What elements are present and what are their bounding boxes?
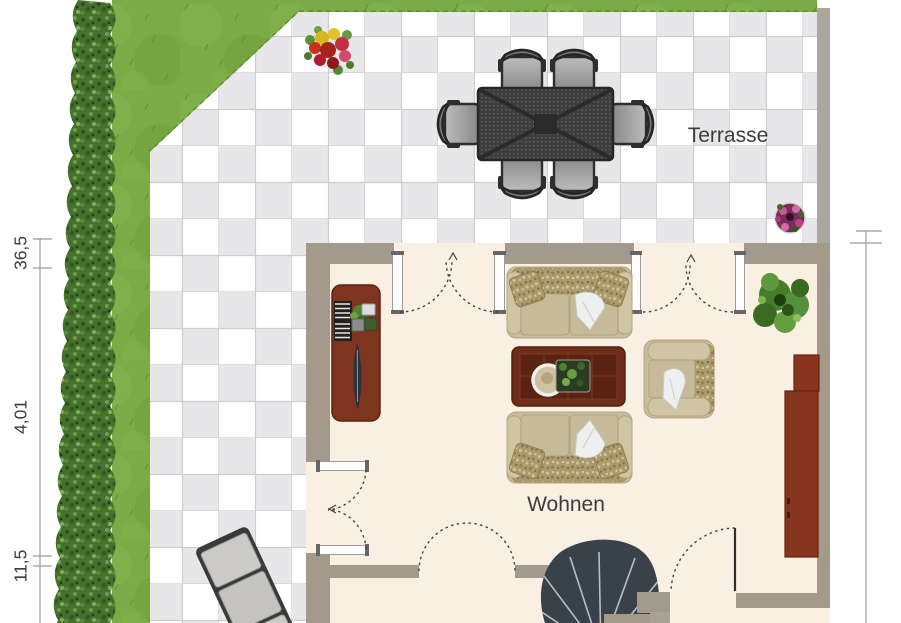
floor-plan-canvas: 36,5 4,01 11,5 Terrasse Wohnen (0, 0, 901, 623)
garden-wall (817, 8, 830, 243)
sofa-lower (507, 412, 632, 483)
dining-chair (610, 100, 653, 148)
dining-chair (498, 155, 546, 198)
wohnen-label: Wohnen (527, 493, 605, 516)
wall-interior-left (330, 565, 419, 578)
sofa-upper (507, 267, 632, 338)
wall-bottom-right (736, 593, 830, 608)
flower-pot-pink (775, 203, 805, 233)
sideboard (332, 285, 380, 421)
stair-landing (637, 592, 670, 613)
dining-chair (550, 50, 598, 93)
terrasse-label: Terrasse (688, 124, 769, 147)
dimension-label-36-5: 36,5 (11, 236, 31, 270)
dining-chair (498, 50, 546, 93)
coffee-table (512, 347, 625, 406)
floor-plan: 36,5 4,01 11,5 Terrasse Wohnen (0, 0, 901, 623)
dining-table (478, 88, 613, 160)
armchair (644, 340, 714, 418)
wall-top-middle (505, 243, 634, 264)
dining-chair (438, 100, 481, 148)
stair-step (650, 612, 670, 623)
plant-tray (556, 360, 590, 392)
wall-left-upper (306, 243, 330, 462)
dimension-label-11-5: 11,5 (11, 550, 31, 583)
dimension-label-4-01: 4,01 (11, 400, 31, 434)
wall-right (817, 243, 830, 608)
dining-chair (550, 155, 598, 198)
wall-left-lower (306, 553, 330, 623)
